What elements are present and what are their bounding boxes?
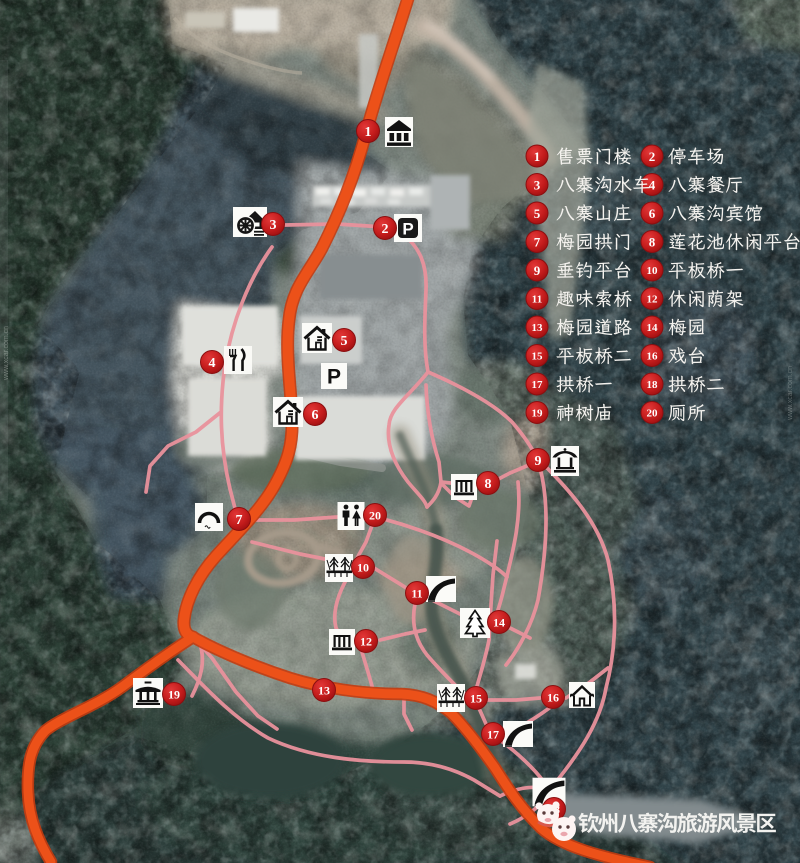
svg-text:7: 7 — [236, 513, 243, 528]
svg-text:17: 17 — [487, 728, 499, 742]
svg-text:3: 3 — [270, 218, 277, 233]
svg-text:www.xcar.com.cn: www.xcar.com.cn — [787, 366, 794, 421]
svg-text:15: 15 — [532, 351, 544, 363]
svg-text:3: 3 — [534, 178, 541, 193]
svg-text:10: 10 — [647, 265, 659, 277]
svg-text:www.xcar.com.cn: www.xcar.com.cn — [3, 326, 10, 381]
svg-text:14: 14 — [647, 322, 659, 334]
svg-text:1: 1 — [534, 149, 541, 164]
svg-text:12: 12 — [647, 294, 659, 306]
svg-text:2: 2 — [649, 149, 656, 164]
svg-text:20: 20 — [647, 408, 659, 420]
svg-text:19: 19 — [168, 688, 180, 702]
svg-text:16: 16 — [647, 351, 659, 363]
svg-text:2: 2 — [382, 222, 389, 237]
svg-text:17: 17 — [532, 379, 544, 391]
svg-text:8: 8 — [649, 235, 656, 250]
svg-text:12: 12 — [360, 635, 372, 649]
svg-text:16: 16 — [547, 691, 559, 705]
svg-text:9: 9 — [534, 263, 541, 278]
svg-text:9: 9 — [535, 454, 542, 469]
svg-text:18: 18 — [647, 379, 659, 391]
svg-text:6: 6 — [649, 206, 656, 221]
svg-text:19: 19 — [532, 408, 544, 420]
svg-text:4: 4 — [209, 356, 216, 371]
svg-text:11: 11 — [532, 294, 542, 306]
svg-text:15: 15 — [470, 692, 482, 706]
svg-text:13: 13 — [318, 684, 330, 698]
svg-text:13: 13 — [532, 322, 544, 334]
svg-text:10: 10 — [357, 561, 369, 575]
svg-text:4: 4 — [649, 178, 656, 193]
svg-text:5: 5 — [534, 206, 541, 221]
svg-text:7: 7 — [534, 235, 541, 250]
svg-text:6: 6 — [312, 408, 319, 423]
svg-text:14: 14 — [493, 616, 505, 630]
svg-text:20: 20 — [369, 509, 381, 523]
svg-text:8: 8 — [485, 477, 492, 492]
svg-text:11: 11 — [411, 587, 422, 601]
svg-text:1: 1 — [365, 125, 372, 140]
svg-text:5: 5 — [341, 334, 348, 349]
